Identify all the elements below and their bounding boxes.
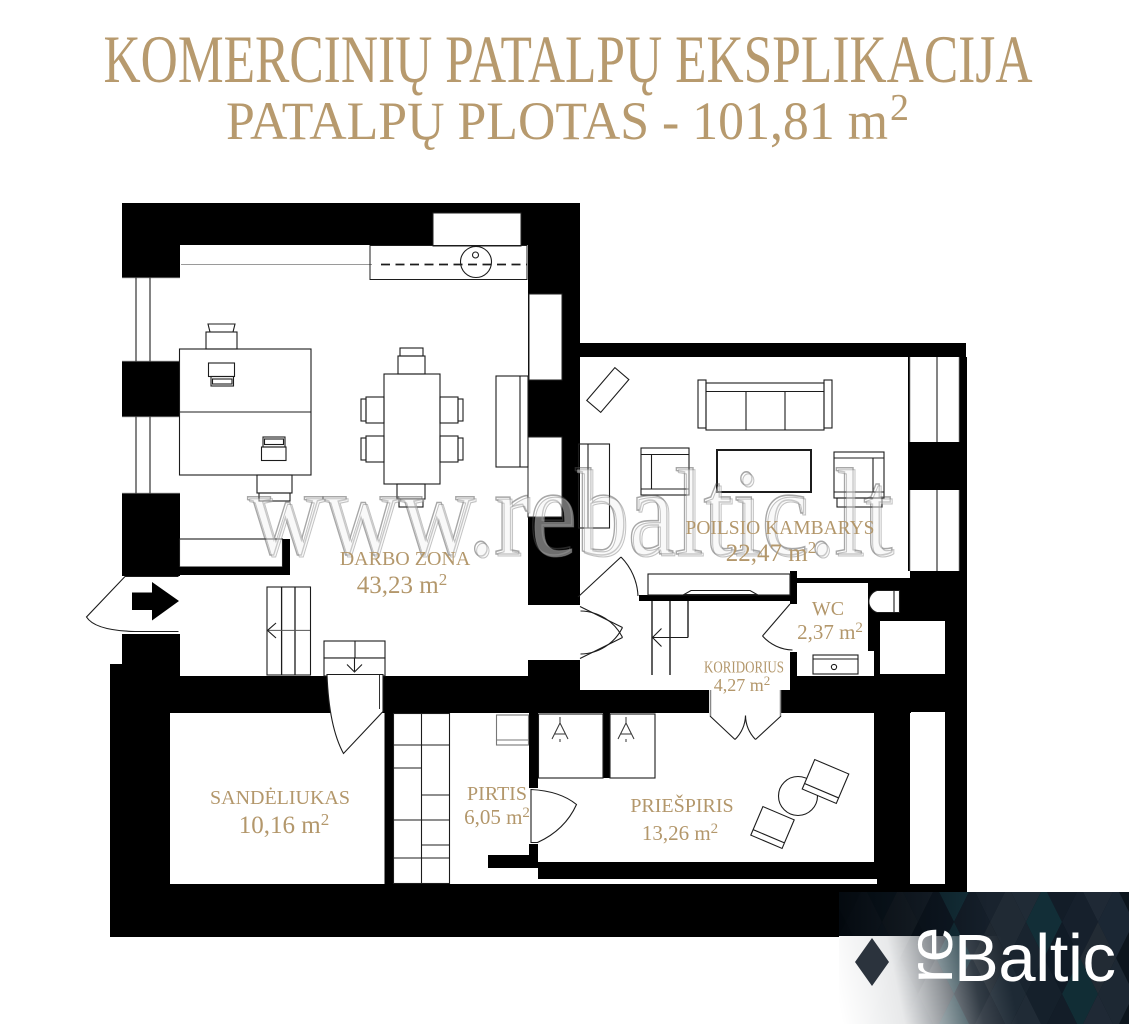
svg-text:Baltic: Baltic — [954, 921, 1116, 996]
svg-text:KORIDORIUS: KORIDORIUS — [704, 658, 784, 677]
svg-text:13,26 m2: 13,26 m2 — [642, 821, 718, 845]
svg-text:WC: WC — [812, 598, 844, 620]
svg-text:4,27 m2: 4,27 m2 — [714, 673, 771, 695]
svg-text:PATALPŲ PLOTAS - 101,81 m: PATALPŲ PLOTAS - 101,81 m — [226, 91, 888, 151]
svg-text:PIRTIS: PIRTIS — [467, 783, 527, 805]
svg-text:PRIEŠPIRIS: PRIEŠPIRIS — [630, 793, 733, 817]
svg-text:DARBO ZONA: DARBO ZONA — [340, 548, 471, 570]
svg-text:2,37 m2: 2,37 m2 — [797, 620, 863, 644]
svg-text:10,16 m2: 10,16 m2 — [239, 810, 329, 839]
svg-text:KOMERCINIŲ PATALPŲ EKSPLIKACIJ: KOMERCINIŲ PATALPŲ EKSPLIKACIJA — [104, 21, 1033, 97]
svg-text:22,47 m2: 22,47 m2 — [726, 538, 816, 567]
svg-text:6,05 m2: 6,05 m2 — [464, 805, 530, 829]
svg-text:43,23 m2: 43,23 m2 — [357, 570, 447, 599]
svg-text:SANDĖLIUKAS: SANDĖLIUKAS — [210, 786, 350, 809]
svg-text:POILSIO KAMBARYS: POILSIO KAMBARYS — [686, 517, 875, 539]
svg-text:2: 2 — [890, 87, 909, 129]
